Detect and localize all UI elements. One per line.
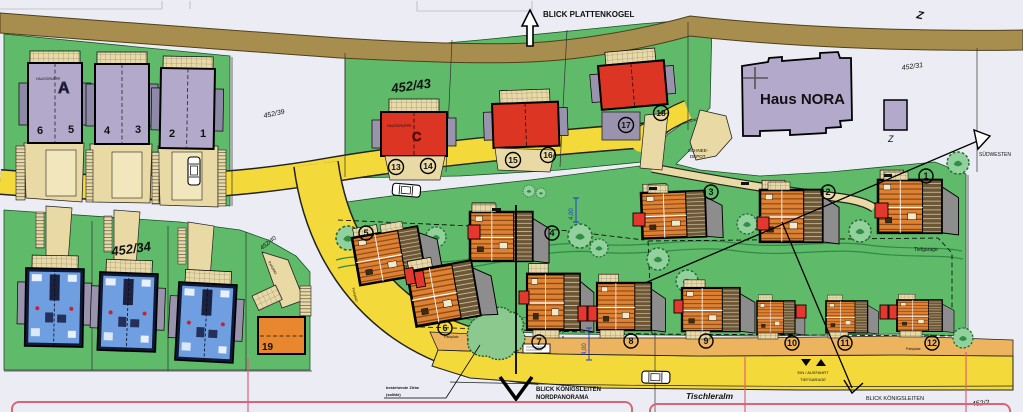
blick-plattenkogel-label: BLICK PLATTENKOGEL (543, 10, 635, 19)
tree (647, 248, 669, 270)
svg-text:6: 6 (442, 323, 447, 333)
unit-number: 4 (104, 125, 111, 137)
haus-nora-label: Haus NORA (760, 91, 845, 108)
unit-number: 6 (37, 125, 43, 137)
svg-text:15: 15 (508, 155, 518, 165)
car-icon (188, 157, 200, 185)
dimension-label: 4,00 (582, 343, 588, 355)
tree (523, 185, 535, 197)
koenigsleiten-sued-label: BLICK KÖNIGSLEITEN (866, 395, 924, 402)
tree (568, 224, 592, 248)
chalet-circle: 10 (785, 336, 799, 350)
svg-text:TIEFGARAGE: TIEFGARAGE (800, 377, 826, 382)
parkplatz-label: Parkplatz (906, 347, 921, 351)
tree (737, 214, 757, 234)
unit-number: 2 (169, 128, 175, 140)
svg-text:1: 1 (923, 171, 928, 181)
svg-text:4: 4 (549, 228, 554, 238)
hausgruppe-text: HAUSGRUPPE (387, 124, 412, 128)
site-plan: 19 Haus NORA Z Z 6 5 4 3 2 1 13 (0, 0, 1023, 412)
svg-text:13: 13 (391, 162, 401, 172)
svg-text:5: 5 (363, 228, 368, 238)
tiefgarage-label: Tiefgarage (914, 247, 938, 253)
group-c-letter: C (412, 129, 422, 144)
svg-text:18: 18 (656, 108, 666, 118)
svg-text:11: 11 (840, 338, 850, 348)
svg-text:BLICK KÖNIGSLEITEN: BLICK KÖNIGSLEITEN (536, 386, 601, 393)
svg-text:12: 12 (927, 338, 937, 348)
haus-nora: Haus NORA (742, 52, 852, 136)
unit-number: 5 (68, 124, 74, 136)
svg-text:2: 2 (825, 187, 830, 197)
svg-text:EIN / AUSFAHRT: EIN / AUSFAHRT (797, 370, 829, 375)
car-icon (392, 183, 421, 197)
house-a-units-6-5 (19, 51, 91, 143)
unit-number: 3 (135, 124, 141, 136)
svg-text:(solitär): (solitär) (386, 392, 401, 397)
svg-text:3: 3 (708, 187, 713, 197)
tree (849, 220, 871, 242)
svg-text:14: 14 (423, 161, 433, 171)
svg-text:10: 10 (787, 338, 797, 348)
z-mark-outbuilding: Z (887, 134, 894, 144)
house-19: 19 (258, 317, 305, 354)
tischleralm-label: Tischleralm (686, 391, 734, 401)
car-icon (642, 371, 670, 383)
tree (536, 188, 546, 198)
svg-text:SCHNEE-: SCHNEE- (688, 148, 709, 153)
house-19-number: 19 (262, 342, 274, 353)
site-plan-canvas: 19 Haus NORA Z Z 6 5 4 3 2 1 13 (0, 0, 1023, 412)
unit-number: 1 (200, 128, 206, 140)
svg-text:16: 16 (543, 150, 553, 160)
group-a-letter: A (58, 80, 70, 97)
chalet-circle: 12 (925, 336, 939, 350)
svg-text:9: 9 (703, 336, 708, 346)
svg-text:bestehende Zirbe: bestehende Zirbe (386, 385, 420, 390)
svg-text:8: 8 (628, 336, 633, 346)
svg-text:17: 17 (621, 120, 631, 130)
house-a-units-4-3 (86, 52, 158, 144)
svg-text:NORDPANORAMA: NORDPANORAMA (536, 395, 589, 401)
tree (590, 239, 608, 257)
blue-house-1 (17, 255, 93, 347)
house-a-units-2-1 (151, 56, 225, 149)
dimension-label: 4,00 (569, 208, 575, 220)
suedwesten-label: SÜDWESTEN (979, 151, 1011, 158)
parkplatz-label: Parkplatz (444, 335, 459, 339)
tree (953, 328, 973, 348)
svg-text:DEPOT: DEPOT (690, 154, 706, 159)
svg-text:7: 7 (536, 337, 541, 347)
tree (947, 152, 969, 174)
